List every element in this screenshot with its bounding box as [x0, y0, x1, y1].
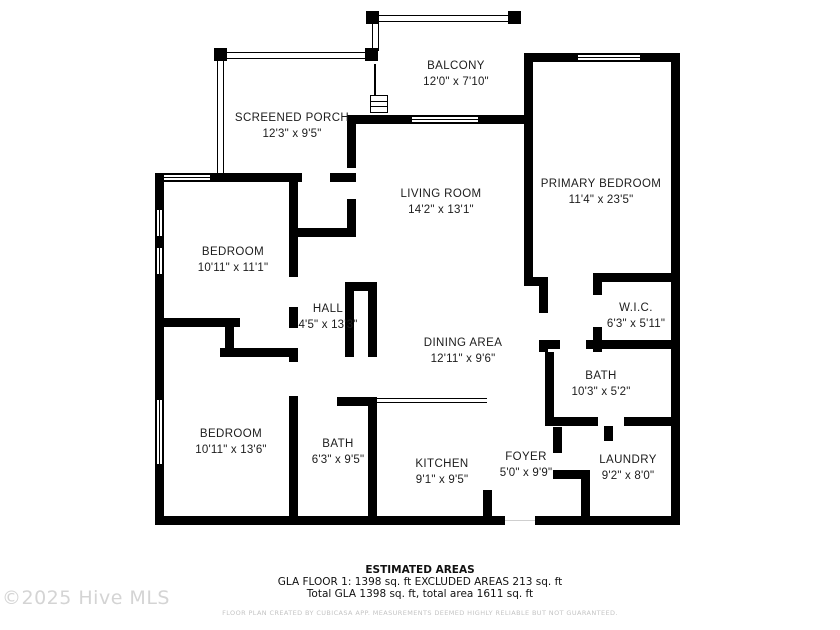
door-threshold: [505, 520, 535, 521]
watermark-text: ©2025 Hive MLS: [2, 587, 170, 609]
room-name: HALL: [278, 301, 378, 317]
wall-segment: [593, 273, 602, 295]
door-opening: [560, 340, 586, 349]
room-name: BALCONY: [391, 58, 521, 74]
room-name: LAUNDRY: [563, 452, 693, 468]
railing-post: [214, 48, 227, 61]
room-dimensions: 10'3" x 5'2": [536, 384, 666, 400]
wall-segment: [604, 426, 613, 441]
window: [164, 173, 210, 182]
room-name: DINING AREA: [398, 335, 528, 351]
room-dimensions: 6'3" x 9'5": [288, 452, 388, 468]
room-label-wic: W.I.C. 6'3" x 5'11": [571, 300, 701, 332]
hvac-unit-icon: [370, 95, 388, 113]
room-dimensions: 10'11" x 13'6": [166, 442, 296, 458]
window: [412, 115, 478, 124]
room-label-bedroom-1: BEDROOM 10'11" x 11'1": [168, 244, 298, 276]
floor-plan: BALCONY 12'0" x 7'10" SCREENED PORCH 12'…: [0, 0, 840, 630]
wall-segment: [539, 286, 548, 313]
door-opening: [598, 417, 624, 426]
window: [155, 210, 164, 236]
room-dimensions: 10'11" x 11'1": [168, 260, 298, 276]
balcony-edge-line: [374, 64, 376, 96]
room-label-screened-porch: SCREENED PORCH 12'3" x 9'5": [227, 110, 357, 142]
room-label-bath-hall: BATH 6'3" x 9'5": [288, 436, 388, 468]
room-name: SCREENED PORCH: [227, 110, 357, 126]
window: [155, 400, 164, 464]
balcony-railing: [372, 24, 379, 51]
wall-segment: [581, 479, 590, 517]
room-name: BEDROOM: [168, 244, 298, 260]
wall-segment: [220, 348, 298, 357]
room-dimensions: 12'11" x 9'6": [398, 351, 528, 367]
wall-segment: [593, 273, 680, 282]
room-label-dining-area: DINING AREA 12'11" x 9'6": [398, 335, 528, 367]
room-name: BATH: [288, 436, 388, 452]
room-name: BATH: [536, 368, 666, 384]
kitchen-counter: [377, 398, 487, 403]
estimated-areas-heading: ESTIMATED AREAS: [0, 564, 840, 576]
wall-segment: [524, 277, 548, 286]
room-dimensions: 9'2" x 8'0": [563, 468, 693, 484]
room-dimensions: 4'5" x 13'3": [278, 317, 378, 333]
room-label-living-room: LIVING ROOM 14'2" x 13'1": [376, 186, 506, 218]
wall-segment: [483, 490, 492, 525]
room-dimensions: 6'3" x 5'11": [571, 316, 701, 332]
wall-segment: [524, 53, 533, 277]
room-dimensions: 12'3" x 9'5": [227, 126, 357, 142]
wall-segment: [539, 340, 548, 352]
balcony-railing: [372, 15, 512, 22]
room-name: W.I.C.: [571, 300, 701, 316]
wall-segment: [289, 348, 298, 362]
wall-segment: [330, 173, 356, 182]
room-dimensions: 12'0" x 7'10": [391, 74, 521, 90]
room-dimensions: 11'4" x 23'5": [531, 192, 671, 208]
disclaimer-text: FLOOR PLAN CREATED BY CUBICASA APP. MEAS…: [0, 609, 840, 617]
room-label-laundry: LAUNDRY 9'2" x 8'0": [563, 452, 693, 484]
room-label-bedroom-2: BEDROOM 10'11" x 13'6": [166, 426, 296, 458]
room-name: LIVING ROOM: [376, 186, 506, 202]
room-label-balcony: BALCONY 12'0" x 7'10": [391, 58, 521, 90]
window: [155, 248, 164, 274]
room-label-primary-bedroom: PRIMARY BEDROOM 11'4" x 23'5": [531, 176, 671, 208]
room-dimensions: 14'2" x 13'1": [376, 202, 506, 218]
window: [578, 53, 640, 62]
room-name: PRIMARY BEDROOM: [531, 176, 671, 192]
railing-post: [365, 48, 378, 61]
room-name: BEDROOM: [166, 426, 296, 442]
wall-segment: [345, 282, 377, 291]
wall-segment: [155, 516, 680, 525]
porch-railing: [227, 52, 367, 59]
room-label-hall: HALL 4'5" x 13'3": [278, 301, 378, 333]
railing-post: [508, 11, 521, 24]
railing-post: [366, 11, 379, 24]
porch-railing: [217, 61, 224, 173]
wall-segment: [298, 228, 356, 237]
room-label-bath-primary: BATH 10'3" x 5'2": [536, 368, 666, 400]
